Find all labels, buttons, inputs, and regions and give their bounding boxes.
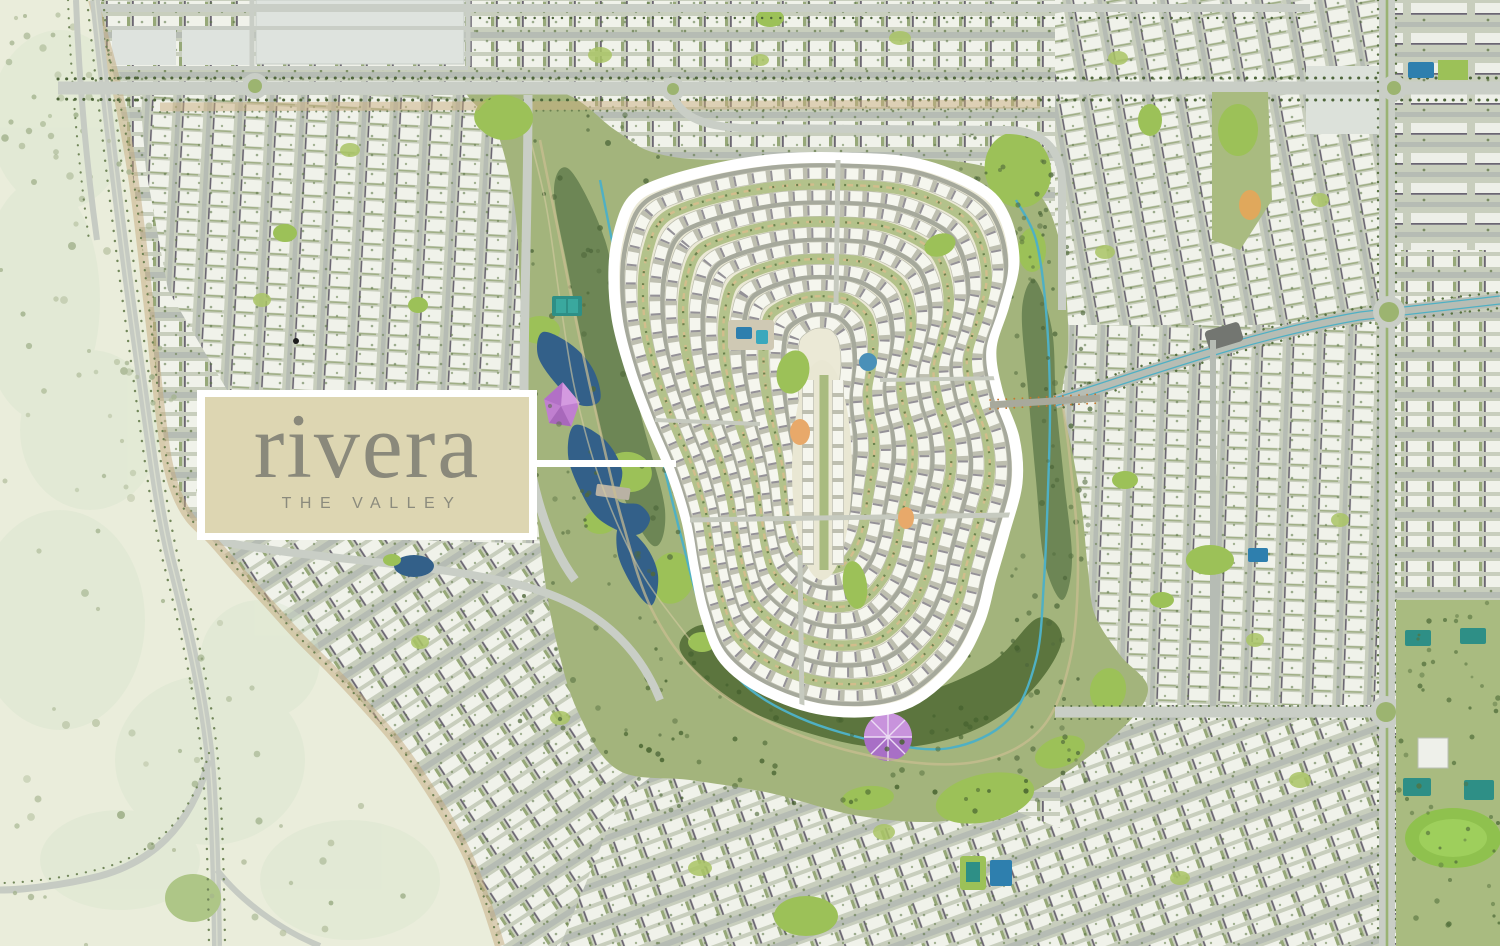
svg-text:rivera: rivera <box>254 395 481 497</box>
svg-text:THE VALLEY: THE VALLEY <box>282 495 463 512</box>
